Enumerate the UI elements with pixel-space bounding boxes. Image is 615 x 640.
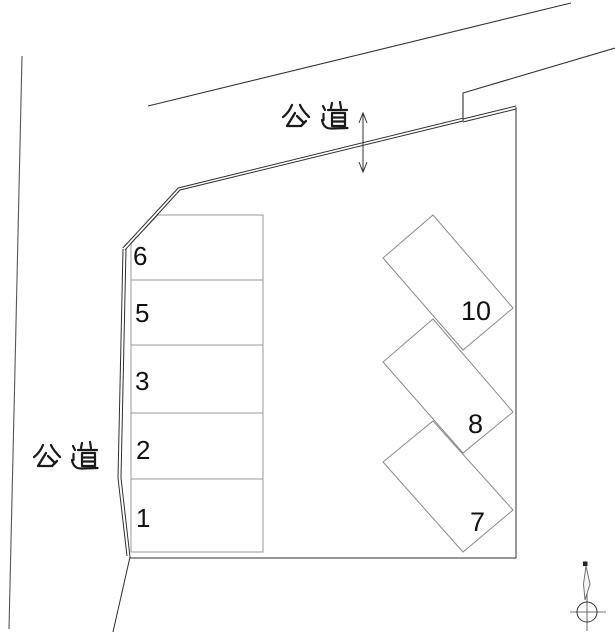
road-label-left-glyphs xyxy=(34,442,98,469)
stall-outline-10 xyxy=(383,215,513,350)
stall-number-7: 7 xyxy=(470,509,485,536)
stall-number-5: 5 xyxy=(135,300,149,326)
stall-outline-3 xyxy=(131,345,263,413)
boundary-topright-line xyxy=(463,109,516,122)
boundary-bottom-tail-line xyxy=(113,557,130,632)
stall-number-6: 6 xyxy=(133,243,147,269)
road-width-arrow xyxy=(359,113,367,172)
stall-number-2: 2 xyxy=(136,437,150,463)
stall-outline-5 xyxy=(131,280,263,345)
stall-number-1: 1 xyxy=(136,505,150,531)
stall-number-10: 10 xyxy=(461,298,491,325)
road-edges xyxy=(9,3,615,629)
plan-drawing xyxy=(0,0,615,640)
stall-outline-7 xyxy=(383,421,513,552)
stall-outline-1 xyxy=(131,479,263,552)
stall-outline-8 xyxy=(383,319,513,453)
parking-stalls-right-column xyxy=(383,215,513,552)
parking-site-plan: 公 道 公 道 6 5 3 2 1 10 8 7 xyxy=(0,0,615,640)
north-compass-icon xyxy=(570,562,606,632)
top-road-lower-edge-line xyxy=(463,48,615,121)
left-road-edge-line xyxy=(9,56,22,629)
stall-number-3: 3 xyxy=(135,368,149,394)
parking-stalls-left-column xyxy=(131,215,263,552)
stall-outline-6 xyxy=(131,215,263,280)
road-label-top-glyphs xyxy=(283,102,348,129)
stall-number-8: 8 xyxy=(468,411,483,438)
stall-outline-2 xyxy=(131,413,263,479)
top-road-upper-edge-line xyxy=(148,3,571,106)
boundary-topright-line-offset xyxy=(463,106,516,119)
